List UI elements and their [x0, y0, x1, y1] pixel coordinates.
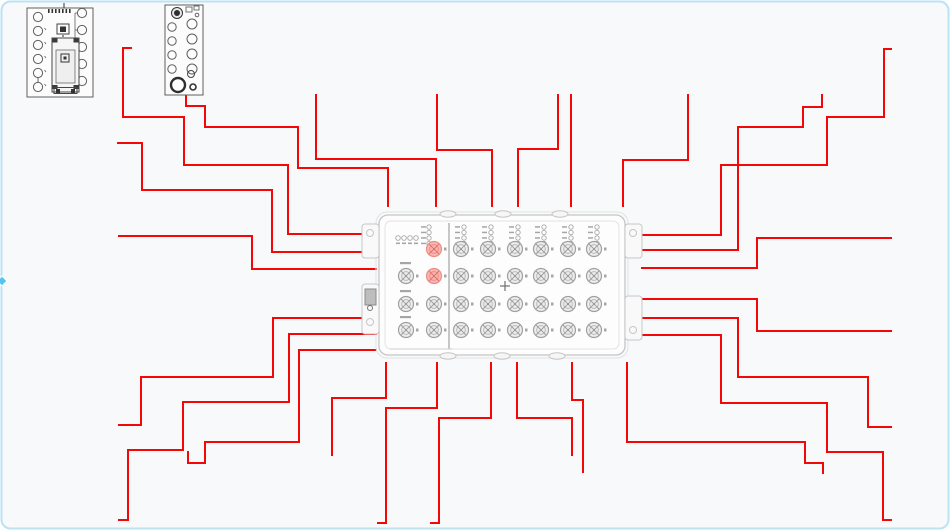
- port-center-pin: [540, 329, 542, 331]
- port-center-pin: [514, 303, 516, 305]
- led-label-mark: [562, 237, 567, 239]
- port-number-mark: [444, 303, 447, 306]
- led-label-mark: [588, 232, 593, 234]
- port-number-mark: [578, 248, 581, 251]
- led-label-mark: [482, 237, 487, 239]
- port-center-pin: [405, 329, 407, 331]
- port-number-mark: [525, 329, 528, 332]
- led-label-mark: [408, 243, 412, 245]
- port-number-mark: [604, 329, 607, 332]
- port-center-pin: [593, 248, 595, 250]
- port-number-mark: [471, 275, 474, 278]
- port-label-mark: [400, 316, 411, 318]
- mounting-tab-bottom: [549, 353, 565, 359]
- module-2-device[interactable]: [165, 5, 203, 95]
- led-label-mark: [455, 232, 460, 234]
- port-number-mark: [604, 248, 607, 251]
- port-number-mark: [578, 329, 581, 332]
- port-center-pin: [540, 248, 542, 250]
- led-label-mark: [421, 232, 426, 234]
- header-print-mark: [62, 9, 64, 13]
- port-number-mark: [604, 275, 607, 278]
- center-chip-core: [64, 57, 67, 60]
- port-center-pin: [567, 303, 569, 305]
- header-print-mark: [52, 9, 54, 13]
- led-label-mark: [588, 226, 593, 228]
- relay-core: [60, 27, 66, 33]
- led-label-mark: [535, 237, 540, 239]
- port-number-mark: [444, 248, 447, 251]
- port-center-pin: [540, 275, 542, 277]
- mounting-tab-bottom: [494, 353, 510, 359]
- top-connector-core: [174, 10, 180, 16]
- port-number-mark: [498, 303, 501, 306]
- port-number-mark: [551, 303, 554, 306]
- port-number-mark: [551, 248, 554, 251]
- port-number-mark: [416, 275, 419, 278]
- port-label-mark: [400, 290, 411, 292]
- port-number-mark: [444, 329, 447, 332]
- ground-terminal-block: [365, 289, 376, 305]
- led-label-mark: [421, 243, 426, 245]
- port-center-pin: [514, 275, 516, 277]
- port-center-pin: [487, 275, 489, 277]
- corner-clamp: [74, 39, 79, 43]
- module-1-device[interactable]: [27, 3, 93, 97]
- led-label-mark: [588, 237, 593, 239]
- diagram-canvas: [0, 0, 950, 530]
- header-print-mark: [48, 9, 50, 13]
- led-label-mark: [396, 243, 400, 245]
- detail-dot: [62, 35, 64, 37]
- port-center-pin: [514, 248, 516, 250]
- led-label-mark: [482, 232, 487, 234]
- port-number-mark: [498, 248, 501, 251]
- port-number-mark: [498, 329, 501, 332]
- port-number-mark: [416, 303, 419, 306]
- port-center-pin: [567, 248, 569, 250]
- port-center-pin: [460, 303, 462, 305]
- port-center-pin: [514, 329, 516, 331]
- led-label-mark: [509, 226, 514, 228]
- port-number-mark: [525, 248, 528, 251]
- port-center-pin: [593, 275, 595, 277]
- led-label-mark: [421, 226, 426, 228]
- main-port-ring: [171, 78, 185, 92]
- header-print-mark: [59, 9, 61, 13]
- port-number-mark: [471, 303, 474, 306]
- port-center-pin: [487, 248, 489, 250]
- mounting-tab-bottom: [440, 353, 456, 359]
- led-label-mark: [535, 226, 540, 228]
- header-print-mark: [69, 9, 71, 13]
- led-label-mark: [562, 226, 567, 228]
- port-center-pin: [460, 248, 462, 250]
- port-center-pin: [433, 303, 435, 305]
- led-label-mark: [421, 237, 426, 239]
- module1-body-inner: [56, 50, 75, 83]
- led-label-mark: [455, 237, 460, 239]
- led-label-mark: [562, 232, 567, 234]
- port-number-mark: [525, 303, 528, 306]
- port-number-mark: [471, 329, 474, 332]
- port-center-pin: [460, 329, 462, 331]
- port-center-pin: [405, 303, 407, 305]
- central-io-block[interactable]: [362, 211, 642, 359]
- led-label-mark: [402, 243, 406, 245]
- port-center-pin: [433, 275, 435, 277]
- port-label-mark: [400, 262, 411, 264]
- port-number-mark: [525, 275, 528, 278]
- port-center-pin: [433, 329, 435, 331]
- port-center-pin: [593, 303, 595, 305]
- mounting-tab-top: [440, 211, 456, 217]
- port-number-mark: [578, 303, 581, 306]
- led-label-mark: [482, 226, 487, 228]
- port-number-mark: [551, 329, 554, 332]
- port-center-pin: [405, 275, 407, 277]
- led-label-mark: [535, 232, 540, 234]
- port-center-pin: [567, 275, 569, 277]
- port-number-mark: [604, 303, 607, 306]
- led-label-mark: [455, 226, 460, 228]
- port-number-mark: [578, 275, 581, 278]
- corner-clamp: [53, 39, 58, 43]
- port-number-mark: [498, 275, 501, 278]
- mounting-tab-top: [495, 211, 511, 217]
- port-number-mark: [471, 248, 474, 251]
- mounting-tab-top: [552, 211, 568, 217]
- port-center-pin: [487, 303, 489, 305]
- plate-screw: [71, 89, 75, 93]
- port-center-pin: [460, 275, 462, 277]
- port-number-mark: [551, 275, 554, 278]
- led-label-mark: [414, 243, 418, 245]
- plate-screw: [56, 89, 60, 93]
- port-center-pin: [433, 248, 435, 250]
- port-number-mark: [444, 275, 447, 278]
- port-center-pin: [593, 329, 595, 331]
- port-number-mark: [416, 329, 419, 332]
- header-print-mark: [66, 9, 68, 13]
- header-print-mark: [55, 9, 57, 13]
- port-center-pin: [540, 303, 542, 305]
- led-label-mark: [509, 237, 514, 239]
- led-label-mark: [509, 232, 514, 234]
- port-center-pin: [487, 329, 489, 331]
- port-center-pin: [567, 329, 569, 331]
